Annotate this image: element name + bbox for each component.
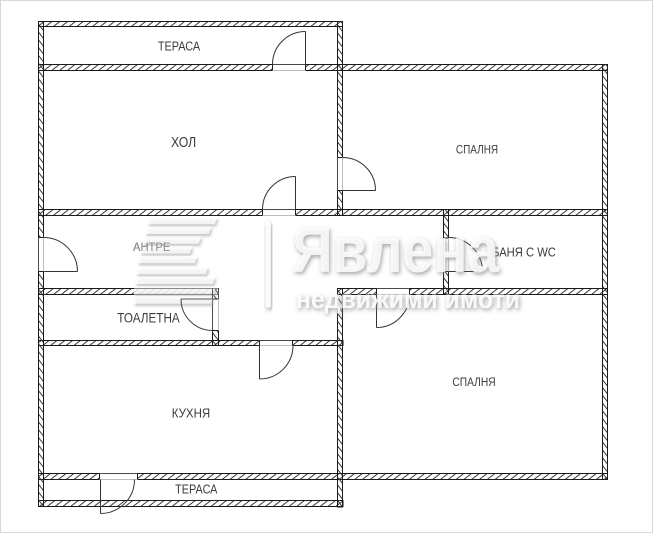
svg-text:ТЕРАСА: ТЕРАСА [175, 482, 218, 496]
svg-text:ТЕРАСА: ТЕРАСА [158, 40, 201, 54]
svg-text:недвижими имоти: недвижими имоти [296, 284, 520, 314]
svg-text:Явлена: Явлена [292, 214, 499, 286]
svg-text:БАНЯ С WC: БАНЯ С WC [492, 245, 556, 259]
svg-text:КУХНЯ: КУХНЯ [172, 406, 210, 421]
svg-text:СПАЛНЯ: СПАЛНЯ [452, 375, 495, 389]
svg-text:СПАЛНЯ: СПАЛНЯ [456, 142, 498, 156]
svg-text:ТОАЛЕТНА: ТОАЛЕТНА [117, 310, 180, 326]
svg-text:ХОЛ: ХОЛ [171, 134, 196, 151]
svg-text:АНТРЕ: АНТРЕ [133, 240, 171, 254]
